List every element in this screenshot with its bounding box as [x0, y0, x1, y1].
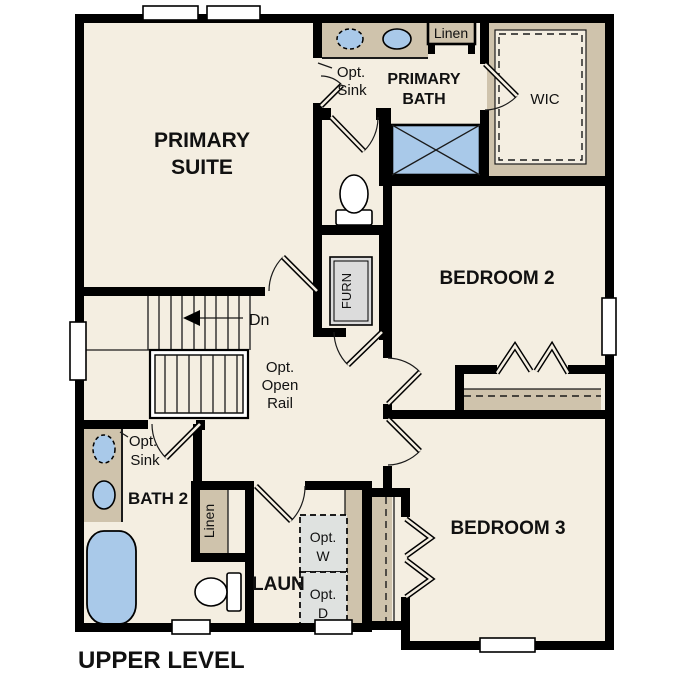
wall-stub [428, 44, 435, 54]
furnace-label: FURN [339, 273, 354, 309]
primary-bath-label: PRIMARY [387, 71, 461, 88]
open-rail-label2: Open [262, 377, 299, 394]
open-rail-label: Opt. [266, 359, 294, 376]
window [602, 298, 616, 355]
window [172, 620, 210, 634]
bath2-label: BATH 2 [128, 489, 188, 508]
window [143, 6, 198, 20]
laundry-label: LAUN [252, 574, 305, 595]
sink-icon [93, 481, 115, 509]
bathtub [87, 531, 136, 624]
window [480, 638, 535, 652]
down-label: Dn [249, 312, 269, 329]
opt-sink-bath2-label: Opt. [129, 433, 157, 450]
bedroom2-label: BEDROOM 2 [439, 268, 554, 289]
optional-sink-icon [337, 29, 363, 49]
opt-dryer-label2: D [318, 605, 328, 621]
toilet-tank [227, 573, 241, 611]
wic-label: WIC [530, 91, 559, 108]
open-rail-label3: Rail [267, 395, 293, 412]
window [315, 620, 352, 634]
linen-primary-label: Linen [434, 25, 468, 41]
opt-washer-label: Opt. [310, 529, 336, 545]
page-title: UPPER LEVEL [78, 647, 245, 674]
wall-stub [468, 44, 475, 54]
optional-sink-icon [93, 435, 115, 463]
primary-bath-label2: BATH [402, 91, 445, 108]
toilet-bowl [340, 175, 368, 213]
opt-sink-primary-label2: Sink [337, 82, 367, 99]
bedroom3-closet-shelf [372, 497, 392, 621]
opt-washer-label2: W [316, 548, 330, 564]
bedroom3-label: BEDROOM 3 [450, 518, 565, 539]
sink-icon [383, 29, 411, 49]
toilet-bowl [195, 578, 227, 606]
linen-hall-label: Linen [201, 504, 217, 538]
primary-suite-label: PRIMARY [154, 129, 250, 152]
opt-sink-bath2-label2: Sink [130, 452, 160, 469]
bedroom2-closet-shelf [464, 389, 601, 410]
opt-sink-primary-label: Opt. [337, 64, 365, 81]
floor-plan: PRIMARY SUITE PRIMARY BATH Opt. Sink Lin… [0, 0, 687, 687]
floor-plan-svg: PRIMARY SUITE PRIMARY BATH Opt. Sink Lin… [0, 0, 687, 687]
window [70, 322, 86, 380]
opt-dryer-label: Opt. [310, 586, 336, 602]
primary-suite-label2: SUITE [171, 156, 233, 179]
window [207, 6, 260, 20]
stair-railing-inner [155, 355, 243, 413]
